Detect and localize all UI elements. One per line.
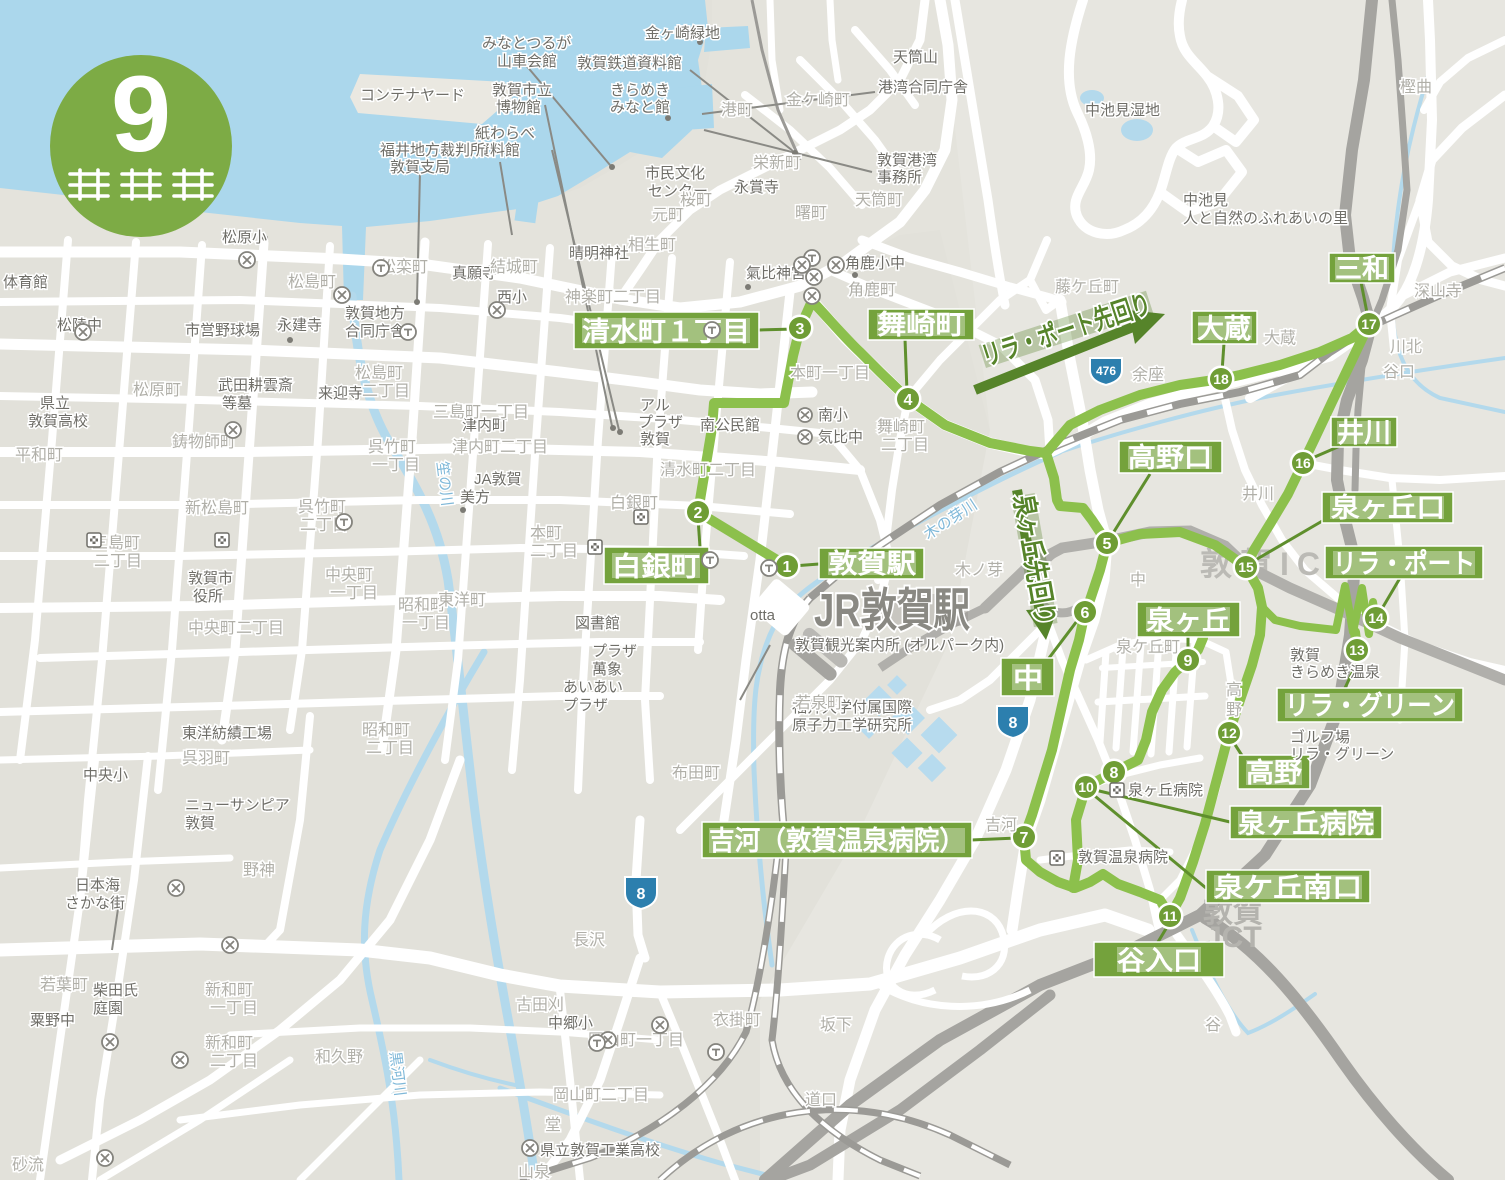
svg-text:アル: アル: [640, 397, 670, 414]
svg-text:中郷小: 中郷小: [548, 1015, 593, 1032]
svg-text:リラ・グリーン: リラ・グリーン: [1285, 690, 1455, 721]
svg-text:来迎寺: 来迎寺: [318, 385, 363, 402]
svg-text:坂下: 坂下: [820, 1016, 852, 1034]
svg-text:高: 高: [1226, 681, 1242, 699]
svg-text:11: 11: [1163, 908, 1178, 924]
svg-text:相生町: 相生町: [628, 236, 676, 254]
svg-text:永賞寺: 永賞寺: [734, 179, 779, 196]
svg-text:泉ヶ丘: 泉ヶ丘: [1146, 605, 1230, 636]
svg-text:コンテナヤード: コンテナヤード: [360, 87, 465, 104]
svg-text:二丁目: 二丁目: [210, 1053, 258, 1070]
svg-text:人と自然のふれあいの里: 人と自然のふれあいの里: [1183, 210, 1348, 227]
svg-text:敦賀港湾: 敦賀港湾: [877, 152, 937, 169]
svg-text:日本海: 日本海: [75, 877, 120, 894]
svg-text:長沢: 長沢: [573, 931, 605, 949]
svg-text:津内町二丁目: 津内町二丁目: [452, 438, 548, 456]
svg-text:4: 4: [904, 392, 913, 409]
svg-text:大蔵: 大蔵: [1264, 329, 1296, 347]
svg-text:金ケ崎町: 金ケ崎町: [786, 91, 850, 109]
svg-text:庭園: 庭園: [93, 1000, 123, 1017]
svg-text:市民文化: 市民文化: [645, 165, 705, 182]
svg-text:3: 3: [796, 321, 805, 338]
svg-text:昭和町: 昭和町: [362, 721, 410, 739]
svg-text:堂: 堂: [545, 1116, 561, 1134]
svg-text:プラザ: プラザ: [592, 643, 637, 660]
svg-text:プラザ: プラザ: [638, 414, 683, 431]
svg-text:7: 7: [1020, 830, 1029, 847]
svg-text:金ヶ崎緑地: 金ヶ崎緑地: [645, 25, 720, 42]
svg-text:中央町: 中央町: [325, 566, 373, 584]
svg-text:9: 9: [111, 53, 171, 174]
svg-text:8: 8: [1009, 715, 1018, 732]
svg-text:港町: 港町: [721, 101, 753, 119]
svg-text:新松島町: 新松島町: [185, 499, 249, 517]
svg-text:三島町一丁目: 三島町一丁目: [433, 403, 529, 421]
svg-text:松原町: 松原町: [133, 381, 181, 399]
svg-text:中央小: 中央小: [83, 767, 128, 784]
svg-text:中池見湿地: 中池見湿地: [1085, 102, 1160, 119]
svg-text:松島町: 松島町: [288, 273, 336, 291]
svg-text:曙町: 曙町: [795, 205, 827, 222]
svg-text:16: 16: [1295, 455, 1311, 471]
svg-text:合同庁舎: 合同庁舎: [345, 323, 405, 340]
svg-text:17: 17: [1361, 316, 1377, 332]
svg-text:野神: 野神: [243, 861, 275, 879]
svg-text:敦賀: 敦賀: [185, 815, 215, 832]
svg-text:あいあい: あいあい: [563, 679, 623, 696]
svg-text:清水町１丁目: 清水町１丁目: [582, 317, 750, 347]
svg-text:一丁目: 一丁目: [330, 585, 378, 602]
svg-text:谷口: 谷口: [1383, 363, 1415, 381]
svg-text:15: 15: [1238, 559, 1254, 575]
svg-text:白銀町: 白銀町: [610, 494, 658, 512]
svg-text:新和町: 新和町: [205, 981, 253, 999]
svg-text:14: 14: [1368, 610, 1384, 626]
svg-text:若泉町: 若泉町: [795, 694, 843, 712]
svg-text:松島町: 松島町: [355, 364, 403, 382]
svg-text:図書館: 図書館: [575, 615, 620, 632]
svg-text:栄新町: 栄新町: [753, 154, 801, 172]
svg-text:白銀町: 白銀町: [612, 551, 700, 582]
svg-text:岡山町二丁目: 岡山町二丁目: [553, 1086, 649, 1104]
svg-text:布田町: 布田町: [672, 764, 720, 782]
svg-text:呉竹町: 呉竹町: [298, 498, 346, 516]
svg-text:余座: 余座: [1132, 365, 1164, 384]
svg-text:きらめき温泉: きらめき温泉: [1290, 664, 1380, 681]
svg-text:プラザ: プラザ: [563, 697, 608, 714]
svg-text:otta: otta: [750, 607, 776, 624]
svg-text:中: 中: [1130, 571, 1146, 589]
svg-text:和久野: 和久野: [315, 1048, 363, 1066]
svg-text:12: 12: [1221, 725, 1237, 741]
svg-text:舞崎町: 舞崎町: [877, 310, 965, 340]
svg-text:泉ヶ丘口: 泉ヶ丘口: [1331, 492, 1445, 523]
svg-text:一丁目: 一丁目: [372, 457, 420, 474]
svg-text:10: 10: [1078, 779, 1094, 795]
svg-text:9: 9: [1184, 653, 1193, 670]
svg-text:井川: 井川: [1242, 485, 1274, 503]
svg-text:深山寺: 深山寺: [1414, 282, 1462, 300]
svg-text:敦賀温泉病院: 敦賀温泉病院: [1078, 848, 1168, 866]
svg-text:県立敦賀工業高校: 県立敦賀工業高校: [540, 1142, 660, 1159]
svg-text:敦賀: 敦賀: [640, 431, 670, 448]
svg-text:天筒山: 天筒山: [893, 49, 938, 66]
svg-text:柴田氏: 柴田氏: [93, 982, 138, 999]
svg-text:結城町: 結城町: [490, 258, 538, 276]
svg-text:泉ヶ丘病院: 泉ヶ丘病院: [1238, 808, 1374, 839]
svg-text:476: 476: [1096, 364, 1116, 378]
svg-text:井川: 井川: [1337, 418, 1391, 448]
svg-text:港湾合同庁舎: 港湾合同庁舎: [878, 79, 968, 96]
svg-text:谷入口: 谷入口: [1117, 946, 1201, 976]
svg-text:紙わらべ: 紙わらべ: [475, 125, 535, 142]
svg-text:福井地方裁判所: 福井地方裁判所: [380, 142, 485, 159]
svg-text:松原小: 松原小: [222, 229, 267, 246]
svg-text:県立: 県立: [40, 395, 70, 412]
svg-text:川北: 川北: [1390, 338, 1422, 356]
svg-text:高野口: 高野口: [1128, 442, 1212, 473]
svg-text:みなとつるが: みなとつるが: [482, 35, 571, 52]
svg-text:一丁目: 一丁目: [210, 1000, 258, 1017]
svg-text:原子力工学研究所: 原子力工学研究所: [792, 717, 912, 734]
svg-text:役所: 役所: [193, 588, 223, 605]
svg-text:吉河（敦賀温泉病院）: 吉河（敦賀温泉病院）: [709, 825, 965, 856]
svg-text:JA敦賀: JA敦賀: [474, 471, 522, 488]
svg-text:古田刈: 古田刈: [516, 996, 564, 1014]
svg-text:気比中: 気比中: [818, 429, 863, 446]
svg-text:13: 13: [1349, 642, 1365, 658]
svg-text:谷: 谷: [1205, 1016, 1221, 1034]
svg-text:山泉: 山泉: [518, 1163, 550, 1180]
svg-text:呉羽町: 呉羽町: [182, 749, 230, 767]
svg-text:事務所: 事務所: [877, 169, 922, 186]
svg-text:5: 5: [1103, 536, 1112, 553]
svg-text:18: 18: [1213, 371, 1229, 387]
svg-text:吉河: 吉河: [985, 816, 1017, 834]
svg-text:等墓: 等墓: [222, 394, 252, 412]
svg-text:山車会館: 山車会館: [497, 53, 557, 70]
svg-text:二丁目: 二丁目: [530, 543, 578, 560]
svg-text:藤ケ丘町: 藤ケ丘町: [1055, 278, 1119, 296]
svg-text:ゴルフ場: ゴルフ場: [1290, 728, 1350, 746]
svg-text:平和町: 平和町: [15, 446, 63, 464]
svg-text:若葉町: 若葉町: [40, 976, 88, 994]
svg-text:敦賀地方: 敦賀地方: [345, 305, 405, 322]
svg-text:市営野球場: 市営野球場: [185, 322, 260, 339]
svg-text:南小: 南小: [818, 407, 848, 424]
svg-text:ニューサンピア: ニューサンピア: [185, 797, 290, 814]
svg-text:リラ・ポート: リラ・ポート: [1333, 549, 1475, 579]
svg-text:二丁目: 二丁目: [881, 437, 929, 454]
svg-text:美方: 美方: [460, 489, 490, 506]
svg-text:一丁目: 一丁目: [402, 615, 450, 632]
svg-text:敦賀観光案内所 (オルパーク内): 敦賀観光案内所 (オルパーク内): [795, 636, 1004, 654]
svg-text:衣掛町: 衣掛町: [713, 1011, 761, 1029]
svg-text:敦賀: 敦賀: [1290, 647, 1320, 664]
svg-text:泉ケ丘町: 泉ケ丘町: [1116, 638, 1180, 656]
svg-text:道口: 道口: [805, 1091, 837, 1109]
svg-text:本町一丁目: 本町一丁目: [790, 364, 870, 382]
svg-text:呉竹町: 呉竹町: [368, 438, 416, 456]
svg-text:2: 2: [694, 505, 703, 522]
svg-text:JR敦賀駅: JR敦賀駅: [814, 584, 970, 636]
svg-text:東洋町: 東洋町: [438, 591, 486, 609]
svg-text:大蔵: 大蔵: [1197, 314, 1251, 344]
svg-text:さかな街: さかな街: [65, 895, 125, 912]
svg-text:新和町: 新和町: [205, 1034, 253, 1052]
svg-text:本町: 本町: [530, 524, 562, 542]
svg-text:泉ケ丘南口: 泉ケ丘南口: [1214, 872, 1362, 903]
svg-text:舞崎町: 舞崎町: [877, 418, 925, 436]
svg-text:リラ・グリーン: リラ・グリーン: [1290, 746, 1394, 763]
svg-text:天筒町: 天筒町: [855, 191, 903, 209]
svg-text:角鹿町: 角鹿町: [848, 281, 896, 299]
svg-text:武田耕雲斎: 武田耕雲斎: [218, 376, 293, 394]
svg-text:粟野中: 粟野中: [30, 1012, 75, 1029]
svg-text:二丁目: 二丁目: [362, 383, 410, 400]
svg-text:泉ヶ丘病院: 泉ヶ丘病院: [1128, 781, 1203, 799]
svg-text:敦賀高校: 敦賀高校: [28, 413, 88, 430]
svg-text:砂流: 砂流: [12, 1156, 44, 1174]
svg-text:8: 8: [1110, 765, 1119, 782]
svg-text:8: 8: [637, 886, 646, 903]
svg-text:中池見: 中池見: [1183, 192, 1228, 209]
svg-text:二丁目: 二丁目: [366, 740, 414, 757]
svg-text:三和: 三和: [1335, 254, 1389, 284]
svg-text:神楽町二丁目: 神楽町二丁目: [565, 288, 661, 306]
svg-text:敦賀市立: 敦賀市立: [492, 82, 552, 99]
svg-text:元町: 元町: [652, 207, 684, 224]
svg-text:1: 1: [783, 559, 792, 576]
svg-text:中央町二丁目: 中央町二丁目: [188, 619, 284, 637]
svg-text:野: 野: [1226, 701, 1242, 719]
svg-text:永建寺: 永建寺: [277, 317, 322, 334]
svg-text:敦賀市: 敦賀市: [188, 570, 233, 587]
svg-text:角鹿小中: 角鹿小中: [845, 255, 905, 272]
svg-text:みなと館: みなと館: [610, 99, 670, 116]
svg-text:萬象: 萬象: [592, 661, 622, 678]
svg-text:敦賀駅: 敦賀駅: [828, 548, 916, 579]
svg-text:体育館: 体育館: [3, 274, 48, 291]
svg-text:敦賀支局: 敦賀支局: [390, 159, 450, 176]
svg-text:博物館: 博物館: [496, 99, 541, 116]
svg-text:東洋紡績工場: 東洋紡績工場: [182, 725, 272, 742]
svg-text:晴明神社: 晴明神社: [569, 245, 629, 262]
svg-text:きらめき: きらめき: [610, 82, 670, 99]
svg-text:6: 6: [1081, 605, 1090, 622]
svg-text:桜町: 桜町: [680, 191, 712, 209]
svg-text:南公民館: 南公民館: [700, 417, 760, 434]
svg-text:中: 中: [1013, 664, 1043, 694]
svg-text:二丁目: 二丁目: [94, 553, 142, 570]
svg-text:木ノ芽: 木ノ芽: [955, 561, 1003, 579]
svg-text:清水町二丁目: 清水町二丁目: [660, 461, 756, 479]
svg-text:敦賀鉄道資料館: 敦賀鉄道資料館: [577, 55, 682, 72]
svg-text:樫曲: 樫曲: [1400, 78, 1432, 96]
